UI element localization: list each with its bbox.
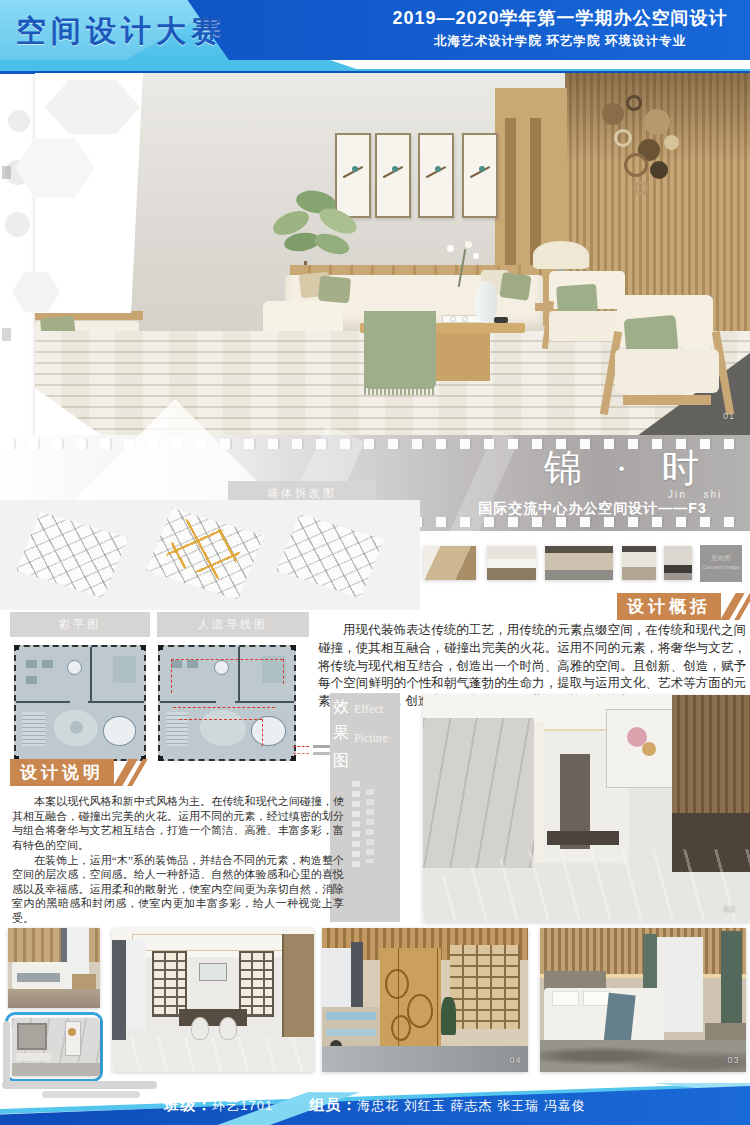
floor-plan-flow <box>158 645 296 761</box>
effect-cn-3: 图 <box>333 751 349 772</box>
pillow <box>318 276 351 304</box>
gallery-bathroom <box>12 1018 100 1076</box>
coffee-table <box>360 311 525 403</box>
summary-heading: 设计概括 <box>617 593 721 620</box>
concept-thumb <box>423 546 476 580</box>
class-label: 班级： <box>164 1096 212 1113</box>
effect-fineprint <box>366 789 374 863</box>
class-value: 环艺1701 <box>212 1098 273 1113</box>
effect-en-2: Picture <box>354 731 388 746</box>
team-label: 组员： <box>309 1096 357 1113</box>
flow-line <box>283 659 284 684</box>
footer-text: 班级：环艺1701 组员：海忠花 刘红玉 薛志杰 张王瑞 冯嘉俊 <box>0 1096 750 1115</box>
office-number: 04 <box>509 1055 521 1065</box>
plan-label: 彩平图 <box>10 612 150 637</box>
concept-thumb <box>487 546 536 580</box>
decor-square <box>2 328 11 341</box>
gallery-office <box>112 928 314 1072</box>
course-title: 2019—2020学年第一学期办公空间设计 <box>378 6 742 30</box>
console-table <box>547 831 619 845</box>
flow-line <box>171 659 172 693</box>
gallery-open-office: 04 <box>322 928 528 1072</box>
flower-sprig <box>443 241 483 285</box>
summary-body: 用现代装饰表达传统的工艺，用传统的元素点缀空间，在传统和现代之间碰撞，使其相互融… <box>318 622 746 696</box>
description-body: 本案以现代风格和新中式风格为主。在传统和现代之间碰撞，使其相互融合，碰撞出完美的… <box>12 794 344 924</box>
effect-render: 02 <box>423 695 750 922</box>
pillow <box>499 272 531 301</box>
gallery-bedroom-small <box>8 928 100 1008</box>
concept-box-en: Concept Image <box>700 563 742 571</box>
team-info: 组员：海忠花 刘红玉 薛志杰 张王瑞 冯嘉俊 <box>309 1096 585 1115</box>
marble-wall <box>423 718 534 868</box>
hero-render: 01 <box>35 73 750 435</box>
class-info: 班级：环艺1701 <box>164 1096 273 1115</box>
school-line: 北海艺术设计学院 环艺学院 环境设计专业 <box>378 33 742 50</box>
effect-cn-2: 果 <box>333 723 349 744</box>
project-subtitle: 国际交流中心办公空间设计——F3 <box>440 500 745 518</box>
lit-column <box>534 722 544 863</box>
project-title: 锦 · 时 <box>505 443 750 494</box>
flow-line <box>173 707 275 708</box>
decor-circle <box>8 110 30 132</box>
flow-label: 人流导线图 <box>157 612 309 637</box>
porcelain-vase <box>475 281 497 323</box>
bedroom-number: 03 <box>727 1055 739 1065</box>
bracket-bar <box>2 1081 157 1089</box>
description-paragraph-1: 本案以现代风格和新中式风格为主。在传统和现代之间碰撞，使其相互融合，碰撞出完美的… <box>12 794 344 853</box>
bracket-bar <box>3 1021 10 1085</box>
description-heading: 设计说明 <box>10 759 114 786</box>
hero-number: 01 <box>723 411 735 421</box>
wall-art-circles <box>592 95 702 210</box>
floor-plan-color <box>14 645 146 761</box>
effect-number: 02 <box>724 904 736 914</box>
concept-thumb <box>664 546 692 580</box>
team-value: 海忠花 刘红玉 薛志杰 张王瑞 冯嘉俊 <box>357 1098 585 1113</box>
painting-panel <box>375 133 411 218</box>
concept-box: 意向图 Concept Image <box>700 545 742 582</box>
effect-en-1: Effect <box>354 702 383 717</box>
gallery-bedroom: 03 <box>540 928 746 1072</box>
concept-thumb <box>622 546 656 580</box>
poster-title: 空间设计大赛 <box>16 11 226 52</box>
art-panel <box>606 709 675 788</box>
painting-panel <box>462 133 498 218</box>
description-paragraph-2: 在装饰上，运用“木”系的装饰品，并结合不同的元素，构造整个空间的层次感，空间感。… <box>12 853 344 926</box>
painting-panel <box>418 133 454 218</box>
project-title-pinyin: Jin shi <box>668 489 722 500</box>
concept-thumb <box>545 546 613 580</box>
reno-highlight-walls <box>164 518 246 582</box>
flow-line <box>171 659 284 660</box>
concept-box-cn: 意向图 <box>700 553 742 563</box>
decor-circle <box>5 212 30 237</box>
armchair <box>607 295 729 427</box>
flow-line <box>262 719 263 746</box>
flow-line <box>179 719 262 720</box>
effect-cn-1: 效 <box>333 697 349 718</box>
effect-fineprint <box>352 781 360 871</box>
poster-page: 空间设计大赛 2019—2020学年第一学期办公空间设计 北海艺术设计学院 环艺… <box>0 0 750 1125</box>
decor-square <box>2 166 11 179</box>
